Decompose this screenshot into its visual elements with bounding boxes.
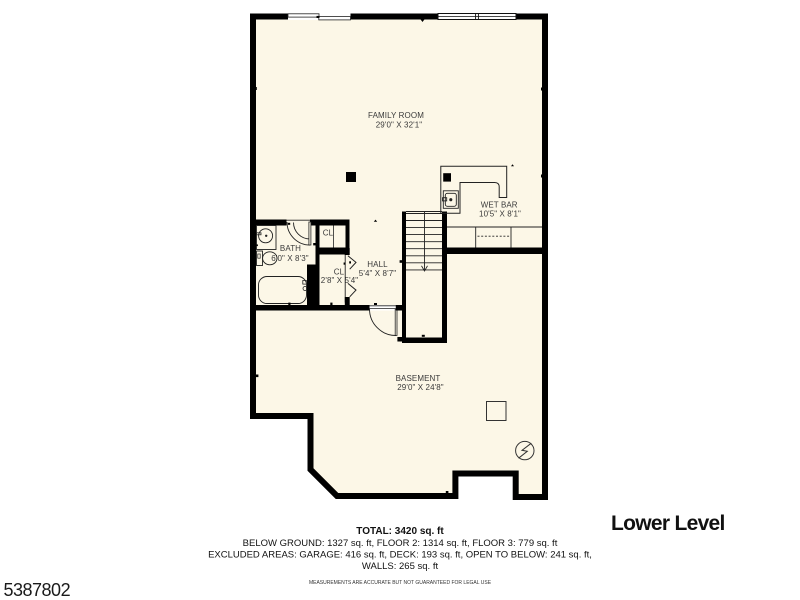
svg-text:5'4" X 8'7": 5'4" X 8'7" xyxy=(359,269,396,278)
svg-text:29'0" X 32'1": 29'0" X 32'1" xyxy=(376,121,423,130)
svg-text:CL: CL xyxy=(334,267,345,276)
svg-text:FAMILY ROOM: FAMILY ROOM xyxy=(368,111,424,120)
svg-text:2'8" X 5'4": 2'8" X 5'4" xyxy=(321,276,358,285)
svg-text:5387802: 5387802 xyxy=(4,580,71,600)
svg-text:CL: CL xyxy=(323,229,334,238)
svg-text:10'5" X 8'1": 10'5" X 8'1" xyxy=(479,210,521,219)
svg-text:WALLS: 265 sq. ft: WALLS: 265 sq. ft xyxy=(362,561,439,572)
svg-text:BASEMENT: BASEMENT xyxy=(396,374,441,383)
svg-text:WET BAR: WET BAR xyxy=(481,200,518,209)
svg-text:BATH: BATH xyxy=(280,244,301,253)
svg-text:MEASUREMENTS ARE ACCURATE BUT: MEASUREMENTS ARE ACCURATE BUT NOT GUARAN… xyxy=(309,580,492,586)
svg-text:29'0" X 24'8": 29'0" X 24'8" xyxy=(397,383,444,392)
svg-text:Lower Level: Lower Level xyxy=(611,512,725,535)
svg-text:TOTAL: 3420 sq. ft: TOTAL: 3420 sq. ft xyxy=(356,526,444,537)
svg-text:EXCLUDED AREAS: GARAGE: 416 sq: EXCLUDED AREAS: GARAGE: 416 sq. ft, DECK… xyxy=(208,549,592,560)
svg-text:HALL: HALL xyxy=(367,260,388,269)
svg-text:BELOW GROUND: 1327 sq. ft, FLO: BELOW GROUND: 1327 sq. ft, FLOOR 2: 1314… xyxy=(243,538,558,549)
